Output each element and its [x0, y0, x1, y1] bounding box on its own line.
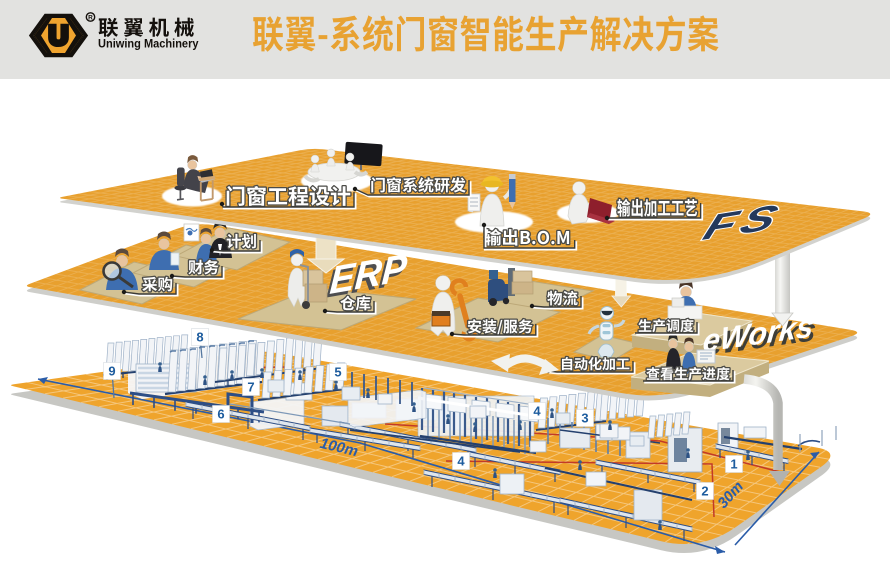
svg-text:7: 7	[247, 380, 254, 395]
svg-text:2: 2	[701, 484, 708, 499]
svg-text:4: 4	[533, 404, 541, 419]
svg-text:4: 4	[457, 454, 465, 469]
svg-text:8: 8	[196, 330, 203, 345]
svg-text:1: 1	[730, 457, 737, 472]
svg-text:3: 3	[581, 411, 588, 426]
svg-text:9: 9	[108, 364, 115, 379]
svg-text:6: 6	[217, 407, 224, 422]
svg-text:5: 5	[334, 365, 341, 380]
